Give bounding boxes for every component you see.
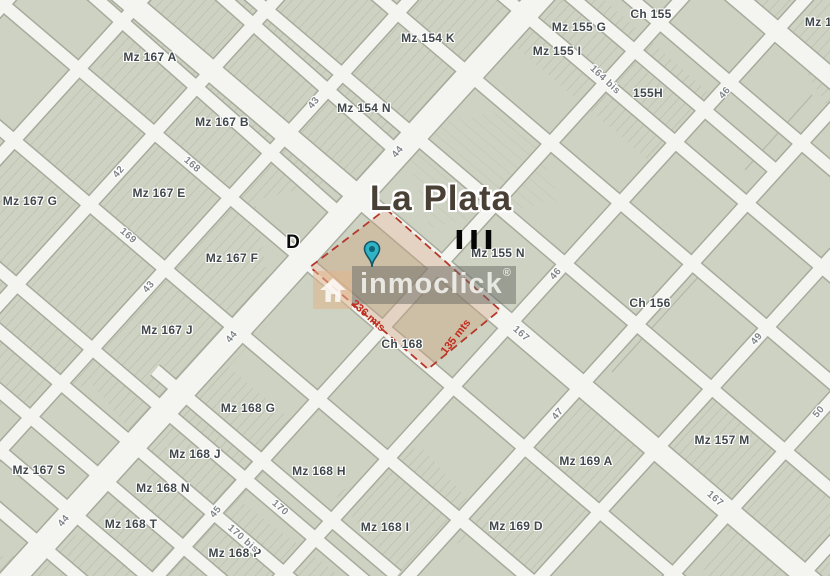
street-label: 47 — [550, 406, 566, 422]
street-label: 167 — [705, 489, 726, 509]
street-label: 44 — [56, 513, 72, 529]
block-label: 155H — [633, 86, 663, 100]
zone-roman-label: III — [454, 224, 498, 256]
block-label: Mz 168 T — [105, 517, 157, 531]
map-labels-layer: Mz 167 AMz 154 KMz 155 GCh 155Mz 155 IMz… — [0, 0, 830, 576]
street-label: 43 — [141, 279, 157, 295]
block-label: Mz 167 G — [3, 194, 57, 208]
block-label: Ch 156 — [629, 296, 670, 310]
block-label: Mz 169 A — [559, 454, 612, 468]
block-label: Mz 154 N — [337, 101, 391, 115]
street-label: 43 — [306, 95, 322, 111]
block-label: Mz 167 J — [141, 323, 193, 337]
block-label: Ch 168 — [381, 337, 422, 351]
block-label: Mz 167 B — [195, 115, 249, 129]
street-label: 45 — [208, 504, 224, 520]
block-label: Mz 168 G — [221, 401, 275, 415]
street-label: 164 bis — [588, 63, 623, 97]
block-label: Ch 155 — [630, 7, 671, 21]
block-label: Mz 167 F — [206, 251, 258, 265]
street-label: 168 — [182, 155, 203, 175]
block-label: Mz 168 N — [136, 481, 190, 495]
zone-letter-label: D — [286, 232, 300, 254]
street-label: 167 — [511, 324, 532, 344]
block-label: Mz 169 D — [489, 519, 543, 533]
street-label: 44 — [390, 144, 406, 160]
street-label: 50 — [811, 404, 827, 420]
block-label: Mz 167 A — [123, 50, 176, 64]
map-canvas[interactable]: inmoclick® Mz 167 AMz 154 KMz 155 GCh 15… — [0, 0, 830, 576]
street-label: 46 — [717, 85, 733, 101]
street-label: 44 — [224, 329, 240, 345]
block-label: Mz 167 S — [12, 463, 65, 477]
block-label: Mz 15 — [805, 15, 830, 29]
city-title: La Plata — [370, 179, 512, 219]
block-label: Mz 155 I — [533, 44, 581, 58]
street-label: 170 — [270, 498, 291, 518]
street-label: 49 — [749, 331, 765, 347]
block-label: Mz 155 G — [552, 20, 606, 34]
street-label: 42 — [111, 164, 127, 180]
block-label: Mz 168 J — [169, 447, 221, 461]
block-label: Mz 157 M — [694, 433, 749, 447]
block-label: Mz 167 E — [132, 186, 185, 200]
street-label: 169 — [118, 226, 139, 246]
block-label: Mz 168 I — [361, 520, 409, 534]
block-label: Mz 154 K — [401, 31, 455, 45]
street-label: 46 — [548, 266, 564, 282]
block-label: Mz 168 H — [292, 464, 346, 478]
